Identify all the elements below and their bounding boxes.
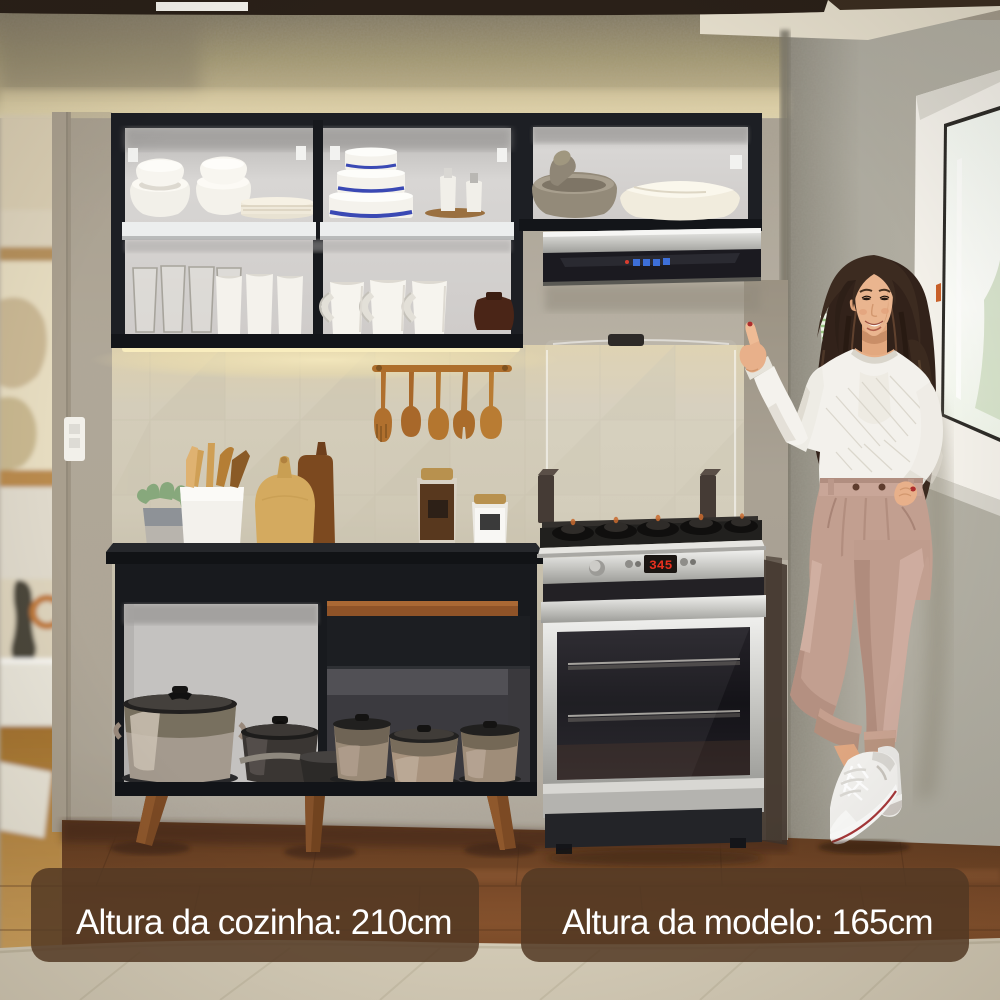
svg-text:Altura da cozinha: 210cm: Altura da cozinha: 210cm [76, 903, 452, 942]
svg-text:Altura da modelo: 165cm: Altura da modelo: 165cm [562, 903, 933, 942]
